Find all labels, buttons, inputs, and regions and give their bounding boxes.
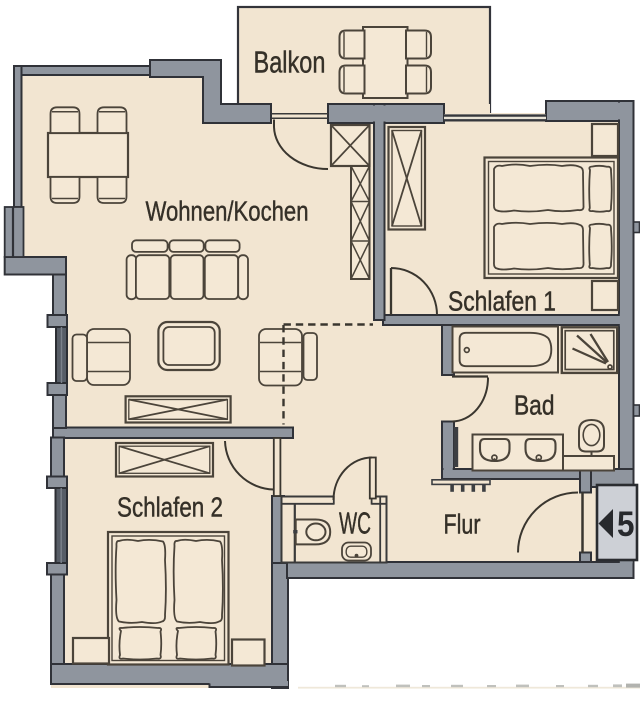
svg-text:Balkon: Balkon xyxy=(254,45,326,80)
svg-text:Schlafen 1: Schlafen 1 xyxy=(448,286,556,317)
svg-text:Bad: Bad xyxy=(514,390,555,421)
svg-text:Wohnen/Kochen: Wohnen/Kochen xyxy=(146,196,309,227)
svg-text:5: 5 xyxy=(617,504,635,544)
svg-text:Schlafen 2: Schlafen 2 xyxy=(117,492,223,523)
svg-text:Flur: Flur xyxy=(444,509,481,540)
svg-text:WC: WC xyxy=(339,507,371,541)
